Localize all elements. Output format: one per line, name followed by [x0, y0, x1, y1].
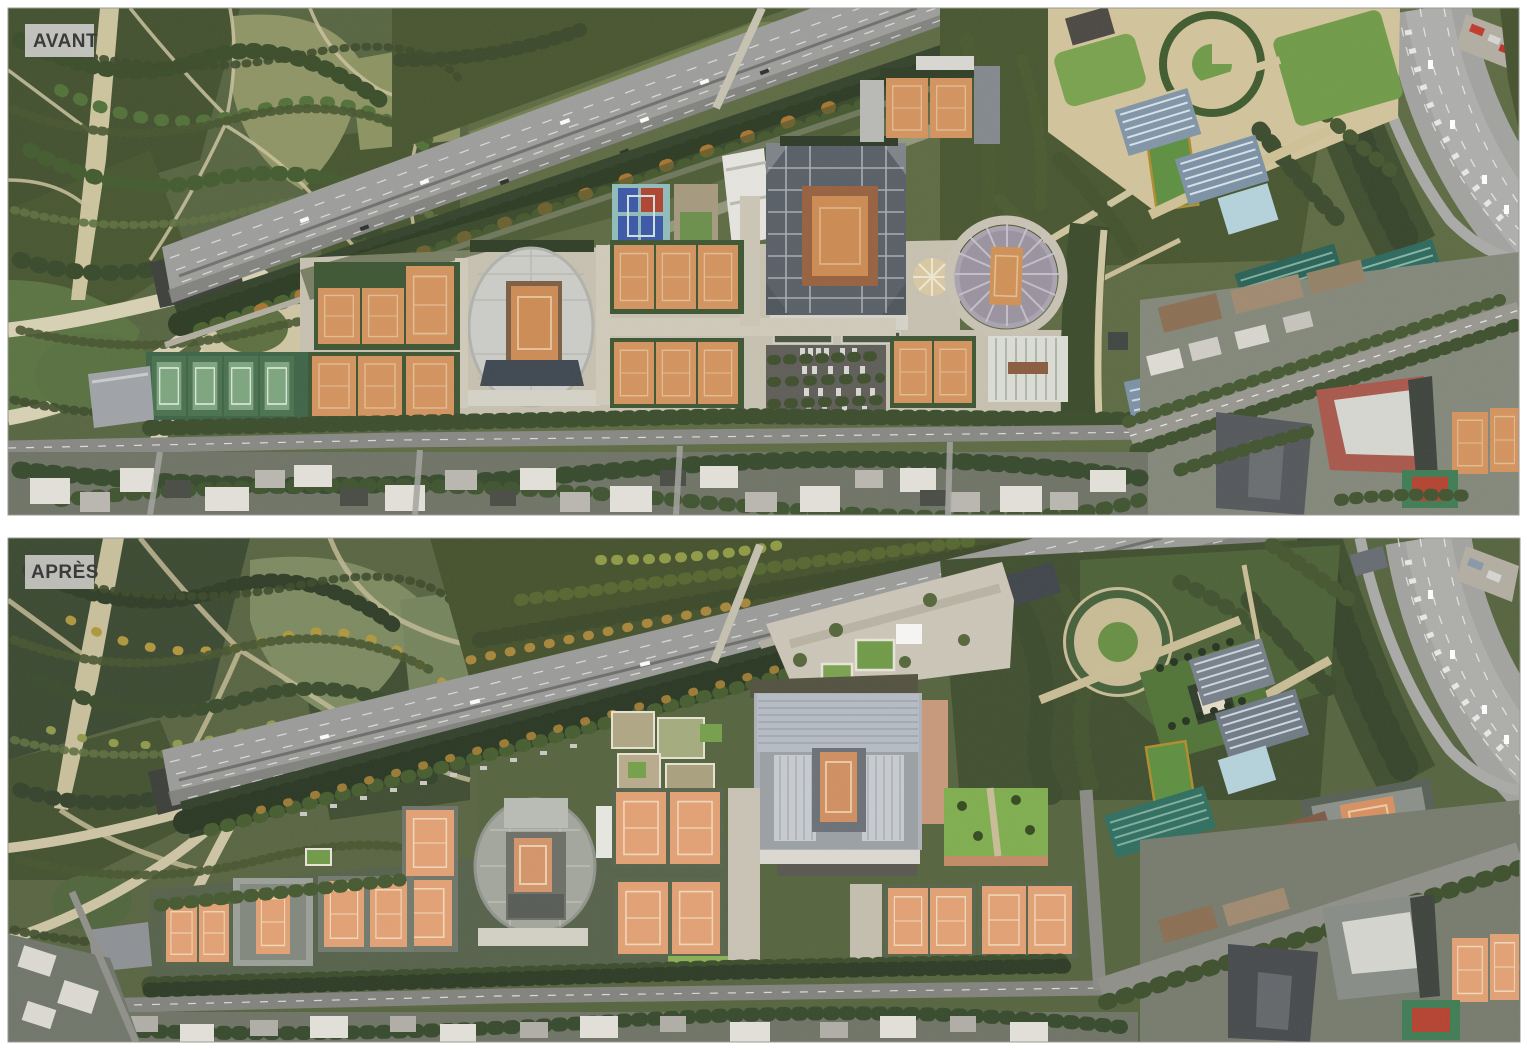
svg-text:AVANT: AVANT	[33, 31, 98, 52]
svg-text:APRÈS: APRÈS	[31, 561, 99, 583]
